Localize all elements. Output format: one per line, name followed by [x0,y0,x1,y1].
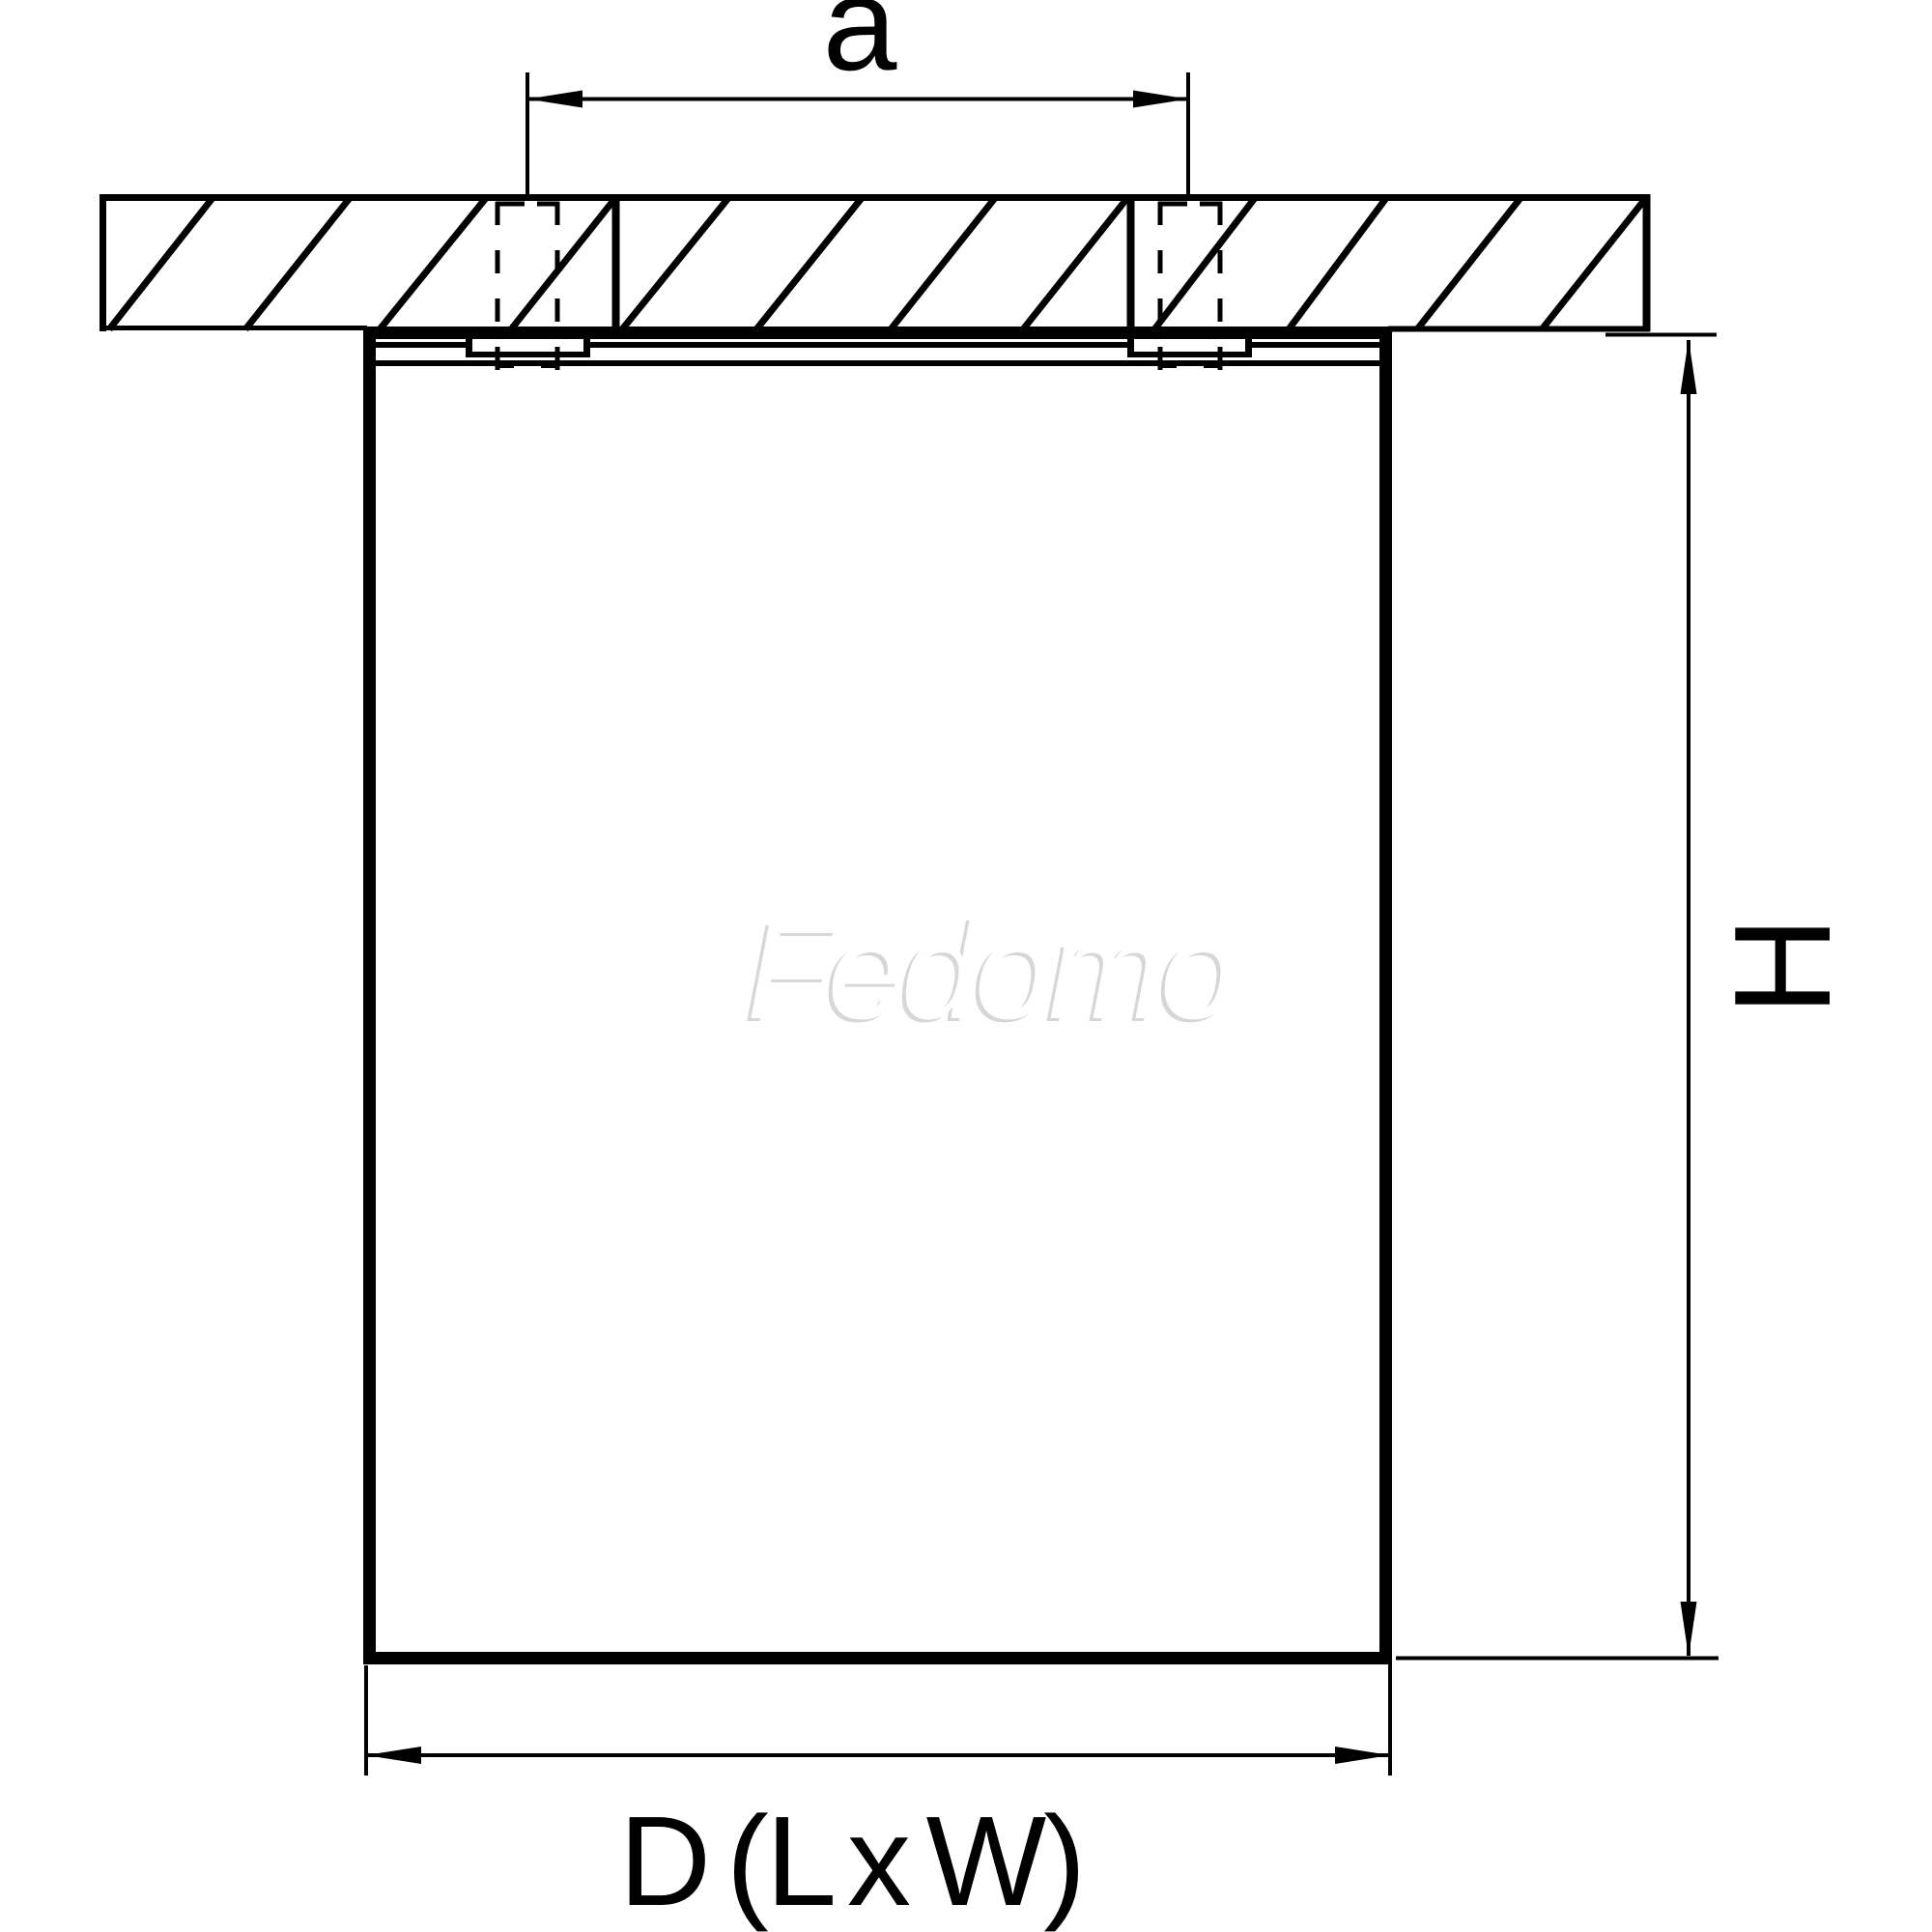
svg-text:D (L x W): D (L x W) [619,1790,1083,1932]
svg-text:a: a [823,0,897,99]
svg-text:Fedomo: Fedomo [747,893,1234,1048]
svg-text:H: H [1706,917,1860,1016]
